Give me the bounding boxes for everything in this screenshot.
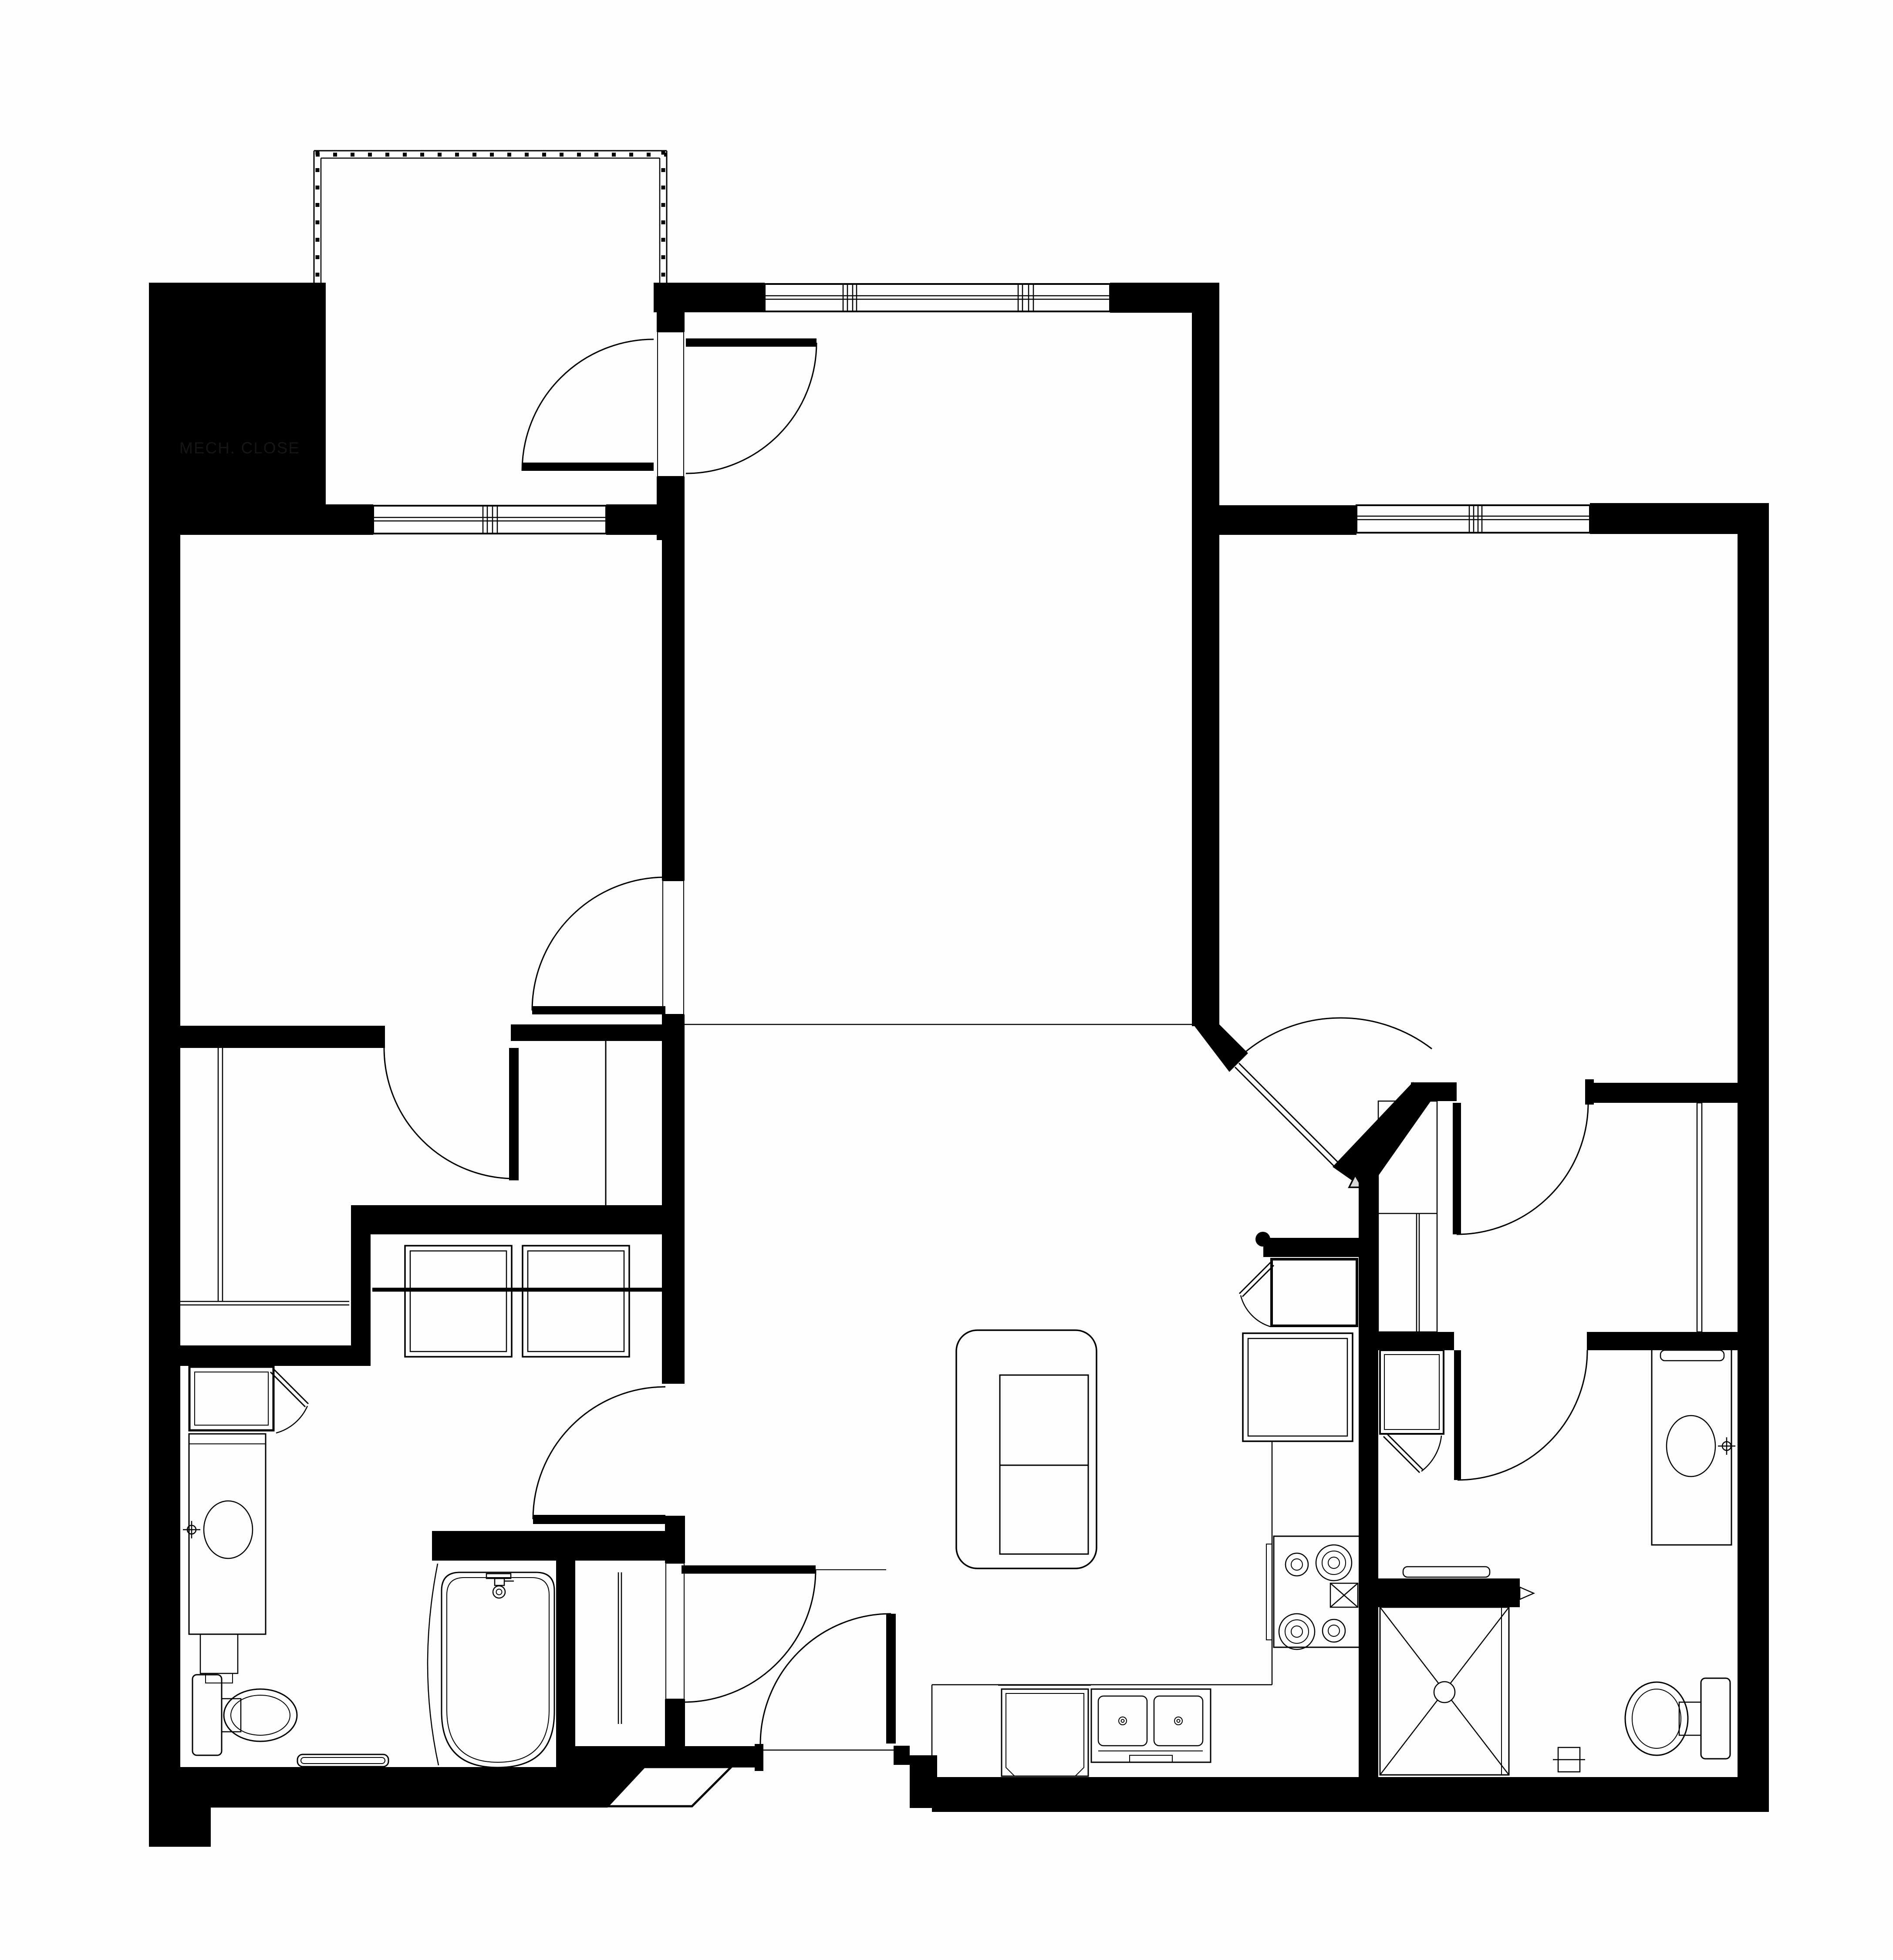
svg-text:MECH. CLOSE: MECH. CLOSE [179, 439, 300, 457]
